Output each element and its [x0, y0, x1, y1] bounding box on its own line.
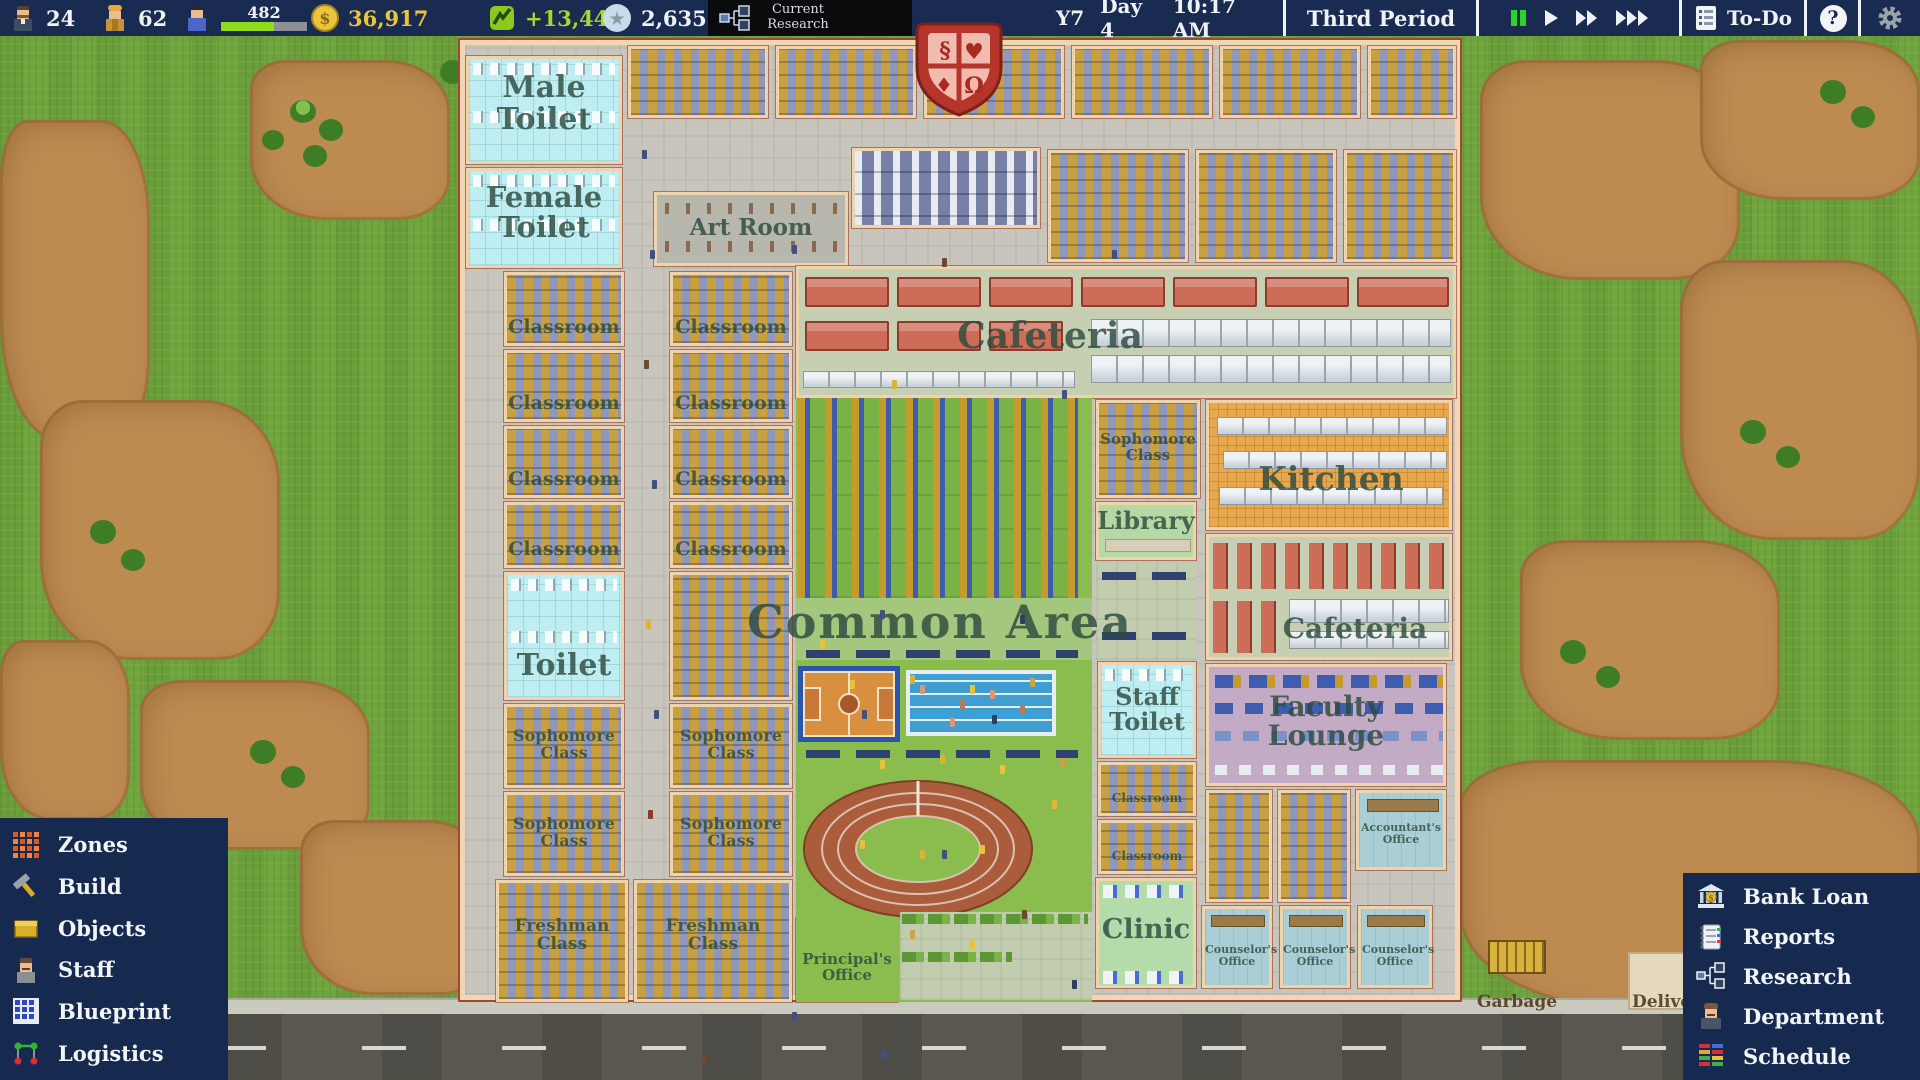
current-research-button[interactable]: Current Research — [708, 0, 912, 36]
toilet-fixtures — [511, 579, 617, 591]
easels — [665, 203, 843, 214]
swimming-pool[interactable] — [906, 670, 1056, 736]
room-male-toilet[interactable] — [466, 56, 622, 164]
prestige-value: 2,635 — [641, 6, 707, 31]
benches — [806, 650, 1078, 658]
room-classroom[interactable] — [1098, 820, 1196, 874]
office-desk — [1211, 915, 1265, 927]
menu-item-staff[interactable]: Staff — [10, 954, 228, 986]
teacher-stat[interactable]: 24 — [8, 0, 75, 36]
todo-button[interactable]: To-Do — [1682, 0, 1804, 36]
garbage-dumpster[interactable] — [1488, 940, 1546, 974]
room-classroom[interactable] — [1048, 150, 1188, 262]
students-hallway — [642, 150, 647, 159]
school-map[interactable]: Male Toilet Female Toilet Classroom Clas… — [0, 0, 1920, 1080]
menu-label: Schedule — [1743, 1044, 1851, 1069]
fast-forward-button[interactable] — [1575, 9, 1599, 27]
lounge-benches — [1215, 703, 1443, 714]
room-library[interactable] — [1096, 502, 1196, 560]
research-tree-icon — [1695, 960, 1727, 992]
room-computer-lab[interactable] — [852, 148, 1040, 228]
income-trend-icon — [487, 3, 517, 33]
room-classroom[interactable] — [670, 502, 792, 568]
hammer-icon — [10, 870, 42, 902]
room-counselors-office[interactable] — [1202, 906, 1272, 988]
tree-clusters — [290, 100, 316, 124]
room-classroom[interactable] — [670, 426, 792, 498]
clinic-beds — [1103, 971, 1191, 984]
teacher-count: 24 — [46, 6, 75, 31]
room-classroom[interactable] — [1368, 46, 1456, 118]
room-accountants-office[interactable] — [1356, 790, 1446, 870]
menu-item-bank-loan[interactable]: $ Bank Loan — [1695, 881, 1920, 913]
menu-label: Department — [1743, 1004, 1884, 1029]
svg-text:★: ★ — [608, 8, 625, 30]
room-kitchen[interactable] — [1206, 400, 1452, 530]
court-yard-pad — [1096, 562, 1196, 660]
menu-item-research[interactable]: Research — [1695, 960, 1920, 992]
menu-item-blueprint[interactable]: Blueprint — [10, 995, 228, 1027]
student-icon — [182, 3, 212, 33]
office-desk — [1367, 799, 1439, 812]
year-label: Y7 — [1056, 6, 1084, 30]
room-faculty-lounge[interactable] — [1206, 664, 1446, 786]
benches — [806, 750, 1078, 758]
room-counselors-office[interactable] — [1358, 906, 1432, 988]
room-sophomore-class[interactable] — [670, 704, 792, 788]
blueprint-grid-icon — [10, 995, 42, 1027]
student-stat[interactable]: 482 — [182, 0, 308, 36]
current-research-label: Current Research — [760, 3, 836, 33]
money-value: 36,917 — [348, 6, 428, 31]
build-menu: Zones Build Objects Staff Blueprint Logi… — [0, 818, 228, 1080]
todo-label: To-Do — [1727, 6, 1792, 30]
room-classroom[interactable] — [1196, 150, 1336, 262]
menu-item-department[interactable]: Department — [1695, 1000, 1920, 1032]
easels — [665, 241, 843, 252]
school-crest[interactable]: § ♥ ♦ Ω — [915, 20, 1003, 118]
room-classroom[interactable] — [1206, 790, 1272, 902]
menu-label: Zones — [58, 832, 128, 857]
worker-stat[interactable]: 62 — [100, 0, 167, 36]
toilet-fixtures — [511, 631, 617, 643]
room-classroom[interactable] — [628, 46, 768, 118]
worker-count: 62 — [138, 6, 167, 31]
svg-text:$: $ — [1708, 892, 1714, 902]
bank-icon: $ — [1695, 881, 1727, 913]
help-icon: ? — [1820, 5, 1847, 32]
room-classroom[interactable] — [504, 350, 624, 422]
lounge-benches — [1215, 675, 1443, 688]
student-capacity: 482 — [220, 5, 308, 31]
prestige-stat[interactable]: ★ 2,635 — [601, 0, 707, 36]
room-classroom[interactable] — [1344, 150, 1456, 262]
menu-item-zones[interactable]: Zones — [10, 829, 228, 861]
room-toilet[interactable] — [504, 572, 624, 700]
room-classroom[interactable] — [670, 350, 792, 422]
reports-notebook-icon — [1695, 921, 1727, 953]
period-label: Third Period — [1286, 0, 1476, 36]
speed-controls — [1479, 0, 1679, 36]
toilet-fixtures — [473, 175, 615, 187]
svg-text:§: § — [939, 38, 951, 64]
worker-icon — [100, 3, 130, 33]
logistics-route-icon — [10, 1037, 42, 1069]
staff-person-icon — [10, 954, 42, 986]
department-person-icon — [1695, 1000, 1727, 1032]
room-classroom[interactable] — [1220, 46, 1360, 118]
room-classroom[interactable] — [1098, 762, 1196, 816]
research-icon — [718, 4, 752, 32]
room-art-room[interactable] — [654, 192, 848, 266]
time-label: 10:17 AM — [1173, 0, 1270, 42]
svg-text:♥: ♥ — [964, 40, 984, 65]
money-stat[interactable]: $ 36,917 — [310, 0, 428, 36]
room-freshman-class[interactable] — [496, 880, 628, 1002]
room-clinic[interactable] — [1096, 878, 1196, 988]
road — [222, 1014, 1920, 1080]
menu-label: Research — [1743, 964, 1852, 989]
management-menu: $ Bank Loan Reports Research Department … — [1683, 873, 1920, 1080]
gear-icon — [1876, 4, 1904, 32]
room-classroom[interactable] — [1072, 46, 1212, 118]
game-screen: Male Toilet Female Toilet Classroom Clas… — [0, 0, 1920, 1080]
pause-button[interactable] — [1510, 9, 1527, 27]
star-icon: ★ — [601, 2, 633, 34]
menu-label: Build — [58, 874, 122, 899]
common-area[interactable] — [796, 398, 1092, 1002]
menu-label: Objects — [58, 916, 146, 941]
lounge-benches — [1215, 731, 1443, 741]
todo-list-icon — [1694, 5, 1718, 31]
room-classroom[interactable] — [670, 272, 792, 346]
room-classroom[interactable] — [504, 426, 624, 498]
menu-label: Logistics — [58, 1041, 164, 1066]
settings-button[interactable] — [1860, 0, 1920, 36]
toilet-fixtures — [473, 219, 615, 231]
room-cafeteria[interactable] — [796, 266, 1456, 398]
coin-icon: $ — [310, 3, 340, 33]
menu-label: Blueprint — [58, 999, 171, 1024]
room-sophomore-class[interactable] — [670, 792, 792, 876]
menu-label: Bank Loan — [1743, 884, 1869, 909]
menu-item-logistics[interactable]: Logistics — [10, 1037, 228, 1069]
south-pavement — [900, 912, 1092, 1000]
room-cafeteria-2[interactable] — [1206, 534, 1452, 660]
room-classroom[interactable] — [670, 572, 792, 700]
menu-item-objects[interactable]: Objects — [10, 912, 228, 944]
menu-item-reports[interactable]: Reports — [1695, 921, 1920, 953]
room-sophomore-class[interactable] — [504, 704, 624, 788]
students-common-area — [820, 640, 825, 649]
svg-text:$: $ — [319, 9, 330, 28]
menu-label: Staff — [58, 957, 114, 982]
lounge-benches — [1215, 765, 1443, 775]
toilet-fixtures — [473, 111, 615, 123]
menu-item-build[interactable]: Build — [10, 870, 228, 902]
menu-item-schedule[interactable]: Schedule — [1695, 1040, 1920, 1072]
office-desk — [1367, 915, 1425, 927]
help-button[interactable]: ? — [1806, 0, 1860, 36]
room-female-toilet[interactable] — [466, 168, 622, 268]
day-label: Day 4 — [1100, 0, 1157, 42]
toilet-fixtures — [1105, 669, 1189, 681]
room-sophomore-class[interactable] — [1096, 400, 1200, 498]
locker-rows — [798, 398, 1078, 598]
room-freshman-class[interactable] — [634, 880, 792, 1002]
room-classroom[interactable] — [504, 502, 624, 568]
teacher-icon — [8, 3, 38, 33]
schedule-grid-icon — [1695, 1040, 1727, 1072]
running-track[interactable] — [800, 778, 1036, 920]
zones-grid-icon — [10, 829, 42, 861]
clinic-beds — [1103, 885, 1191, 898]
office-desk — [1289, 915, 1343, 927]
basketball-court[interactable] — [798, 666, 900, 742]
toilet-fixtures — [473, 63, 615, 75]
student-count: 482 — [247, 5, 280, 21]
svg-text:Ω: Ω — [964, 73, 984, 99]
menu-label: Reports — [1743, 924, 1835, 949]
room-counselors-office[interactable] — [1280, 906, 1350, 988]
fastest-forward-button[interactable] — [1615, 9, 1649, 27]
room-staff-toilet[interactable] — [1098, 662, 1196, 758]
room-classroom[interactable] — [1278, 790, 1350, 902]
room-classroom[interactable] — [504, 272, 624, 346]
play-button[interactable] — [1543, 9, 1559, 27]
room-classroom[interactable] — [776, 46, 916, 118]
svg-text:♦: ♦ — [935, 73, 953, 97]
student-capacity-bar — [221, 22, 307, 31]
crate-icon — [10, 912, 42, 944]
library-tables — [1105, 539, 1191, 552]
room-sophomore-class[interactable] — [504, 792, 624, 876]
clock-section: Y7 Day 4 10:17 AM — [1056, 0, 1282, 36]
